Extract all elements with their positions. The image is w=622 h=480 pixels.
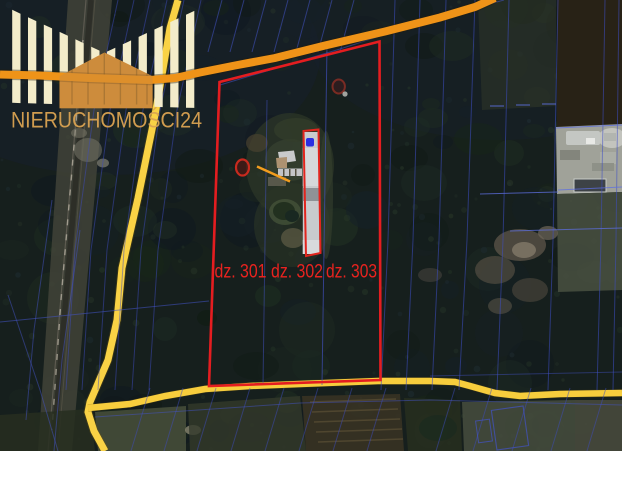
svg-text:NIERUCHOMOŚCI24: NIERUCHOMOŚCI24: [11, 108, 202, 133]
svg-text:dz. 302: dz. 302: [271, 261, 323, 283]
svg-text:dz. 303: dz. 303: [326, 261, 377, 283]
svg-text:dz. 301: dz. 301: [215, 261, 267, 283]
